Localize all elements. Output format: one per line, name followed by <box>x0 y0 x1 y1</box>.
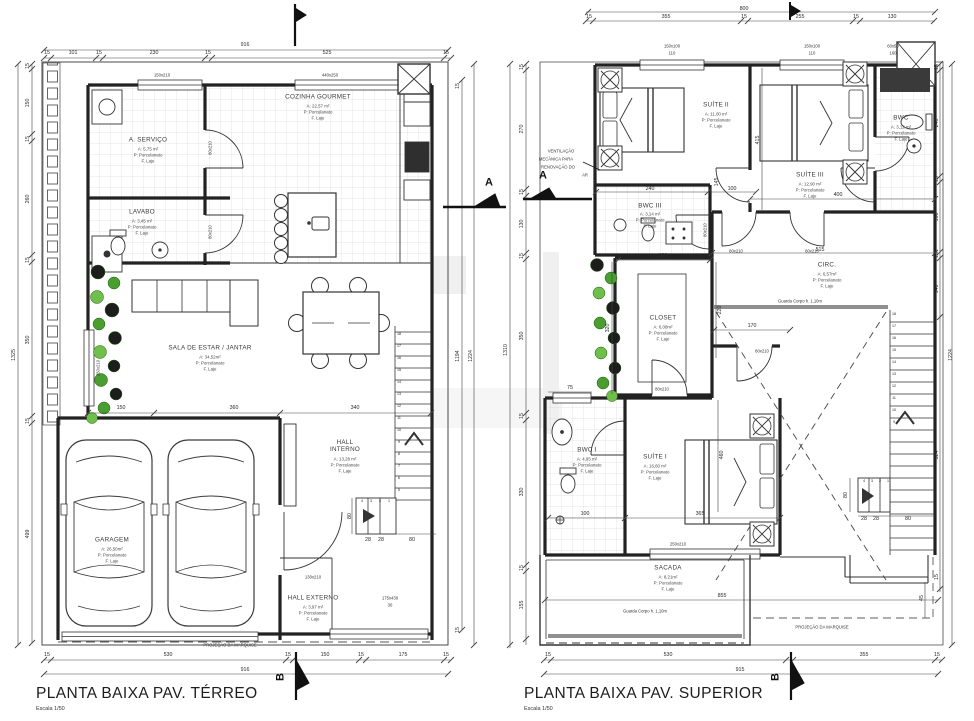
room-floor-label: P: Porcelanato <box>813 277 842 282</box>
dim-label: 80 <box>843 492 849 498</box>
room-area-label: A: 13,28 m² <box>334 456 357 461</box>
room-area-label: A: 6,08m² <box>653 324 672 329</box>
dim-label: 330 <box>519 488 525 497</box>
room-name-label: SACADA <box>654 564 681 571</box>
room-floor-label: P: Porcelanato <box>299 610 328 615</box>
dim-label: 360 <box>230 405 239 411</box>
dim-label: 80 <box>347 513 353 519</box>
dim-label: 45 <box>919 595 925 601</box>
door-size-label: 80x210 <box>209 225 214 239</box>
room-floor-label: P: Porcelanato <box>134 152 163 157</box>
dim-label: 150 <box>321 652 330 658</box>
door-size-label: 80x210 <box>655 388 669 393</box>
room-name-label: CLOSET <box>650 314 677 321</box>
room-area-label: A: 22,57 m² <box>307 103 330 108</box>
stair-number: 13 <box>892 372 896 376</box>
room-name-label: GARAGEM <box>95 536 129 543</box>
dim-label: 101 <box>69 50 78 56</box>
dim-label: 15 <box>25 257 31 263</box>
dim-label: 140 <box>934 285 940 294</box>
note-label: MECÂNICA PARA <box>539 158 573 163</box>
room-area-label: A: 12,90 m² <box>799 181 822 186</box>
stair-number: 1 <box>388 499 390 503</box>
stair-number: 7 <box>398 464 400 468</box>
dim-label: 15 <box>934 574 940 580</box>
room-floor-label: P: Porcelanato <box>331 462 360 467</box>
room-slab-label: F. Laje <box>106 558 119 563</box>
dim-label: 191 <box>659 253 668 259</box>
room-floor-label: P: Porcelanato <box>649 330 678 335</box>
stair-number: 4 <box>863 479 865 483</box>
stair-number: 10 <box>892 408 896 412</box>
watermark <box>432 252 561 434</box>
room-floor-label: P: Porcelanato <box>196 360 225 365</box>
window-sill-label: 110 <box>669 52 676 57</box>
dim-label: 15 <box>25 63 31 69</box>
stair-number: 16 <box>397 356 401 360</box>
plan-title: PLANTA BAIXA PAV. TÉRREO <box>36 685 258 703</box>
dim-label: 15 <box>519 64 525 70</box>
dim-label: 80 <box>905 516 911 522</box>
floorplan-drawing <box>0 0 974 721</box>
stair-number: 18 <box>397 332 401 336</box>
dim-label: 28 <box>873 516 879 522</box>
window-size-label: 440x250 <box>322 74 338 79</box>
door-size-label: 80x210 <box>209 141 214 155</box>
fence-hatch <box>43 63 60 425</box>
dim-label: 15 <box>853 14 859 20</box>
dim-label: 15 <box>25 418 31 424</box>
up-arrow-icon <box>405 433 423 445</box>
dim-label: 15 <box>443 50 449 56</box>
room-floor-label: P: Porcelanato <box>887 130 916 135</box>
floor-plan-sheet: A. SERVIÇO A: 5,75 m² P: Porcelanato F. … <box>0 0 974 721</box>
stair-number: 3 <box>370 499 372 503</box>
room-name-label: BWC III <box>638 202 661 209</box>
dim-label: 150 <box>25 99 31 108</box>
dim-label: 915 <box>736 667 745 673</box>
room-slab-label: F. Laje <box>339 468 352 473</box>
room-slab-label: F. Laje <box>204 366 217 371</box>
shower-box <box>880 68 930 92</box>
door-size-label: 80x210 <box>755 350 769 355</box>
dim-label: 15 <box>519 253 525 259</box>
section-marker-a: A <box>485 177 493 190</box>
dim-label: 15 <box>934 176 940 182</box>
window-size-label: 60x50 <box>887 45 898 50</box>
room-slab-label: F. Laje <box>804 193 817 198</box>
dim-label: 15 <box>934 652 940 658</box>
room-area-label: A: 3,14 m² <box>640 211 660 216</box>
stair-number: 12 <box>397 404 401 408</box>
stair-number: 12 <box>892 384 896 388</box>
room-area-label: A: 8,21m² <box>658 574 677 579</box>
room-area-label: A: 4,95 m² <box>577 456 597 461</box>
dim-label: 240 <box>646 186 655 192</box>
dim-label: 100 <box>581 511 590 517</box>
room-floor-label: P: Porcelanato <box>702 117 731 122</box>
room-floor-label: P: Porcelanato <box>98 552 127 557</box>
room-floor-label: P: Porcelanato <box>573 462 602 467</box>
room-area-label: A: 16,60 m² <box>644 463 667 468</box>
room-name-label: BWC <box>893 114 908 121</box>
dim-label: 15 <box>741 14 747 20</box>
room-slab-label: F. Laje <box>136 230 149 235</box>
dim-label: 28 <box>365 537 371 543</box>
window-size-label: 150x210 <box>154 74 170 79</box>
stair-number: 17 <box>397 344 401 348</box>
door-size-label: 80x210 <box>805 250 819 255</box>
dim-label: 15 <box>519 413 525 419</box>
dim-label: 1224 <box>468 350 474 362</box>
room-slab-label: F. Laje <box>662 586 675 591</box>
dim-label: 320 <box>605 324 611 333</box>
window-size-label: 150x100 <box>804 45 820 50</box>
dim-label: 15 <box>455 627 461 633</box>
dim-label: 800 <box>740 6 749 12</box>
room-name-label: LAVABO <box>129 208 155 215</box>
dim-label: 15 <box>519 189 525 195</box>
dim-label: 1325 <box>11 349 17 361</box>
dim-label: 15 <box>586 14 592 20</box>
plan-scale: Escala 1/50 <box>524 706 553 712</box>
stair-number: 16 <box>892 336 896 340</box>
room-area-label: A: 11,00 m² <box>705 111 727 116</box>
dim-label: 75 <box>567 385 573 391</box>
window-sill-label: 110 <box>809 52 816 57</box>
stair-number: 11 <box>397 416 401 420</box>
door-size-label: 80x210 <box>704 223 709 237</box>
stair-number: 18 <box>892 312 896 316</box>
stair-number: 9 <box>893 420 895 424</box>
room-name-label: A. SERVIÇO <box>129 136 167 143</box>
stair-number: 13 <box>397 392 401 396</box>
dim-label: 260 <box>25 195 31 204</box>
beds <box>600 85 868 524</box>
stair-number: 5 <box>398 488 400 492</box>
dim-label: 150 <box>117 405 126 411</box>
room-floor-label: P: Porcelanato <box>796 187 825 192</box>
dim-label: 1310 <box>503 344 509 356</box>
dim-label: 15 <box>443 652 449 658</box>
dim-label: 15 <box>358 652 364 658</box>
room-floor-label: P: Porcelanato <box>304 109 333 114</box>
tile-floor <box>88 85 432 263</box>
stair-number: 4 <box>361 499 363 503</box>
stair-number: 14 <box>397 380 401 384</box>
window-sill-label: 30 <box>388 604 393 609</box>
dim-label: 350 <box>519 332 525 341</box>
section-marker-b: B <box>275 673 288 681</box>
dim-label: 15 <box>455 83 461 89</box>
stair-number: 10 <box>397 428 401 432</box>
dim-label: 350 <box>25 336 31 345</box>
right-plan-linework <box>507 2 955 700</box>
stair-number: 15 <box>892 348 896 352</box>
dim-label: 15 <box>545 652 551 658</box>
door-size-label: 130x210 <box>305 576 321 581</box>
room-name-label: CIRC. <box>818 261 836 268</box>
dim-label: 15 <box>519 565 525 571</box>
room-floor-label: P: Porcelanato <box>636 217 665 222</box>
dim-label: 15 <box>44 652 50 658</box>
door-size-label: 80x210 <box>729 250 743 255</box>
stair-number: 3 <box>871 479 873 483</box>
room-name-label: BWC I <box>577 446 596 453</box>
room-floor-label: P: Porcelanato <box>641 469 670 474</box>
dim-label: 15 <box>934 64 940 70</box>
section-marker-b: B <box>770 673 783 681</box>
room-slab-label: F. Laje <box>895 136 908 141</box>
dim-label: 15 <box>44 50 50 56</box>
room-floor-label: P: Porcelanato <box>654 580 683 585</box>
shaft-x-box <box>398 64 430 94</box>
marquise-right <box>753 555 933 618</box>
stair-number: 2 <box>879 479 881 483</box>
note-label: PROJEÇÃO DA MARQUISE <box>203 644 256 649</box>
note-label: PROJEÇÃO DA MARQUISE <box>795 626 848 631</box>
room-name-label: COZINHA GOURMET <box>285 93 351 100</box>
stair-number: 8 <box>398 452 400 456</box>
room-name-label: SUÍTE I <box>643 453 667 460</box>
dim-label: 1194 <box>455 350 461 361</box>
room-area-label: A: 34,52m² <box>199 354 220 359</box>
room-area-label: A: 3,45 m² <box>132 218 152 223</box>
stair-number: 15 <box>397 368 401 372</box>
room-floor-label: P: Porcelanato <box>128 224 157 229</box>
note-label: Guarda Corpo h. 1,10m <box>778 300 822 305</box>
dim-label: 530 <box>164 652 173 658</box>
dim-label: 15 <box>934 252 940 258</box>
dim-label: 499 <box>25 530 31 539</box>
room-slab-label: F. Laje <box>710 123 723 128</box>
dim-label: 1224 <box>948 349 954 361</box>
dim-label: 255 <box>796 14 805 20</box>
stair-number: 1 <box>887 479 889 483</box>
stair-number: 11 <box>892 396 896 400</box>
room-slab-label: F. Laje <box>649 475 662 480</box>
room-name-label: HALL INTERNO <box>324 439 366 453</box>
dim-label: 170 <box>748 323 757 329</box>
room-area-label: A: 26,50m² <box>101 546 122 551</box>
room-name-label: HALL EXTERNO <box>288 594 339 601</box>
stair-number: 9 <box>398 440 400 444</box>
dim-label: 355 <box>662 14 671 20</box>
room-slab-label: F. Laje <box>657 336 670 341</box>
room-name-label: SALA DE ESTAR / JANTAR <box>168 344 251 351</box>
stair-number: 6 <box>398 476 400 480</box>
dim-label: 230 <box>150 50 159 56</box>
dim-label: 15 <box>205 50 211 56</box>
note-label: AR <box>582 174 588 179</box>
dim-label: 916 <box>241 42 250 48</box>
window-size-label: 150x100 <box>664 45 680 50</box>
room-name-label: SUÍTE II <box>703 101 729 108</box>
dim-label: 624 <box>934 451 940 460</box>
left-plan-linework <box>15 4 506 700</box>
dim-label: 340 <box>351 405 360 411</box>
window-size-label: 250x210 <box>97 360 102 376</box>
dim-label: 365 <box>696 511 705 517</box>
dim-label: 355 <box>860 652 869 658</box>
dim-label: 155 <box>519 601 525 610</box>
stair-number: 14 <box>892 360 896 364</box>
dim-label: 175 <box>399 652 408 658</box>
room-slab-label: F. Laje <box>581 468 594 473</box>
dim-label: 855 <box>718 593 727 599</box>
window-sill-label: 160 <box>890 52 897 57</box>
room-area-label: A: 6,57m² <box>817 271 836 276</box>
stair-number: 17 <box>892 324 896 328</box>
room-slab-label: F. Laje <box>312 115 325 120</box>
dim-label: 525 <box>323 50 332 56</box>
dim-label: 220 <box>717 306 723 315</box>
dim-label: 530 <box>664 652 673 658</box>
note-label: VENTILAÇÃO <box>548 150 575 155</box>
cars <box>61 440 259 626</box>
room-area-label: A: 3,97 m² <box>303 604 323 609</box>
room-slab-label: F. Laje <box>142 158 155 163</box>
dim-label: 28 <box>861 516 867 522</box>
dim-label: 460 <box>719 451 725 460</box>
door-size-label: 250x210 <box>670 543 686 548</box>
room-area-label: A: 5,75 m² <box>138 146 158 151</box>
stair-number: 2 <box>379 499 381 503</box>
note-label: Guarda Corpo h. 1,10m <box>623 610 667 615</box>
dim-label: 400 <box>834 192 843 198</box>
dim-label: 130 <box>888 14 897 20</box>
dim-label: 916 <box>241 667 250 673</box>
plan-scale: Escala 1/50 <box>36 706 65 712</box>
plan-title: PLANTA BAIXA PAV. SUPERIOR <box>524 685 763 703</box>
dim-label: 28 <box>378 537 384 543</box>
kitchen-appliances <box>404 90 430 200</box>
dim-label: 270 <box>519 125 525 134</box>
dim-label: 15 <box>96 50 102 56</box>
room-slab-label: F. Laje <box>307 616 320 621</box>
dim-label: 160 <box>934 213 940 222</box>
room-name-label: SUÍTE III <box>796 171 824 178</box>
dim-label: 415 <box>755 136 761 145</box>
kitchen-island <box>275 193 337 264</box>
stairs <box>858 310 935 555</box>
dim-label: 80 <box>409 537 415 543</box>
room-area-label: A: 3,12 m² <box>891 124 911 129</box>
dining-set <box>289 278 390 369</box>
room-slab-label: F. Laje <box>644 223 657 228</box>
dim-label: 100 <box>728 186 737 192</box>
sofa <box>132 280 258 326</box>
section-marker-a: A <box>539 170 547 183</box>
dim-label: 130 <box>519 220 525 229</box>
dim-label: 145 <box>714 178 720 187</box>
dim-label: 15 <box>25 136 31 142</box>
dim-label: 15 <box>285 652 291 658</box>
dim-label: 240 <box>934 119 940 128</box>
window-size-label: 175x430 <box>382 597 398 602</box>
room-slab-label: F. Laje <box>821 283 834 288</box>
